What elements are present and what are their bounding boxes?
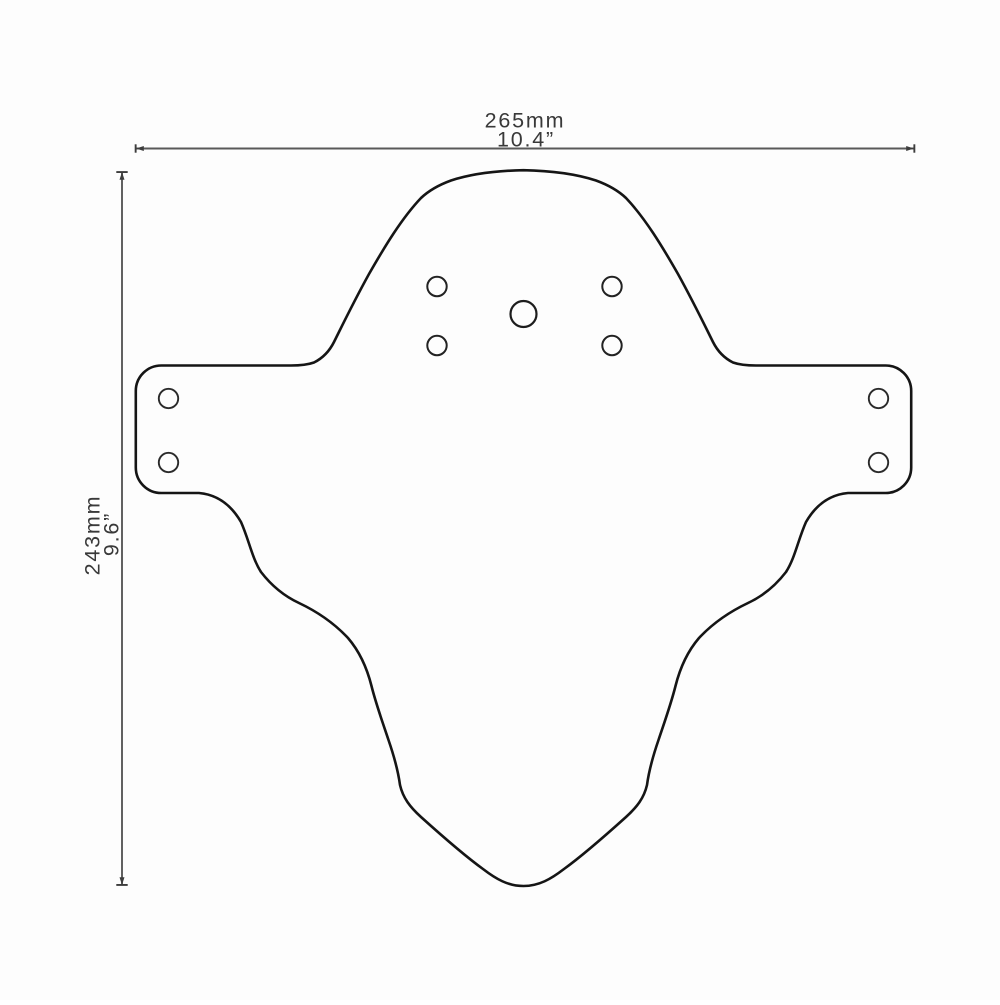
svg-text:9.6”: 9.6” xyxy=(100,512,124,556)
svg-text:10.4”: 10.4” xyxy=(497,128,555,152)
